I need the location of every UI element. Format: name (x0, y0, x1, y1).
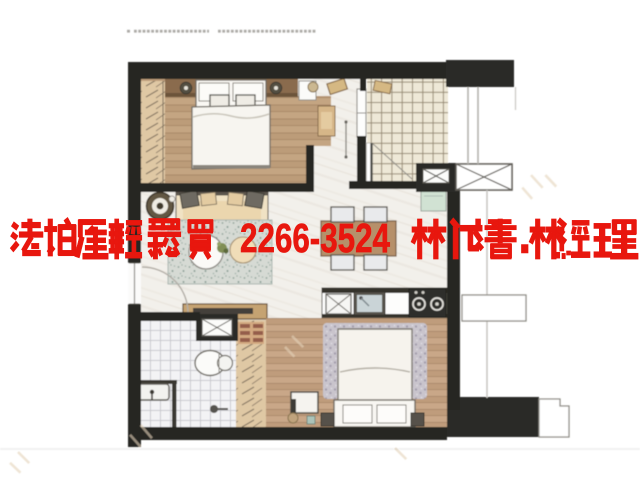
svg-text:2266-3524: 2266-3524 (240, 215, 390, 261)
